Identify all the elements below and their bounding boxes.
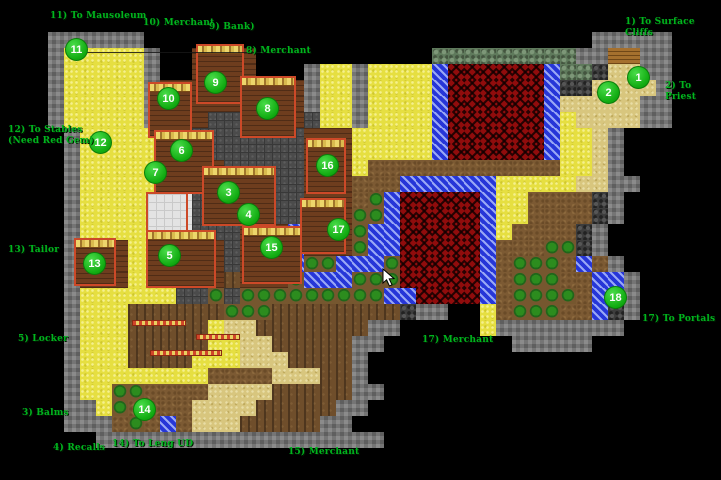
map-tile bbox=[480, 144, 496, 160]
map-tile bbox=[352, 176, 368, 192]
map-tile bbox=[576, 192, 592, 208]
map-tile bbox=[464, 176, 480, 192]
map-tile bbox=[304, 64, 320, 80]
building-roof-trim bbox=[244, 228, 300, 236]
map-tile bbox=[128, 128, 144, 144]
map-tile bbox=[528, 48, 544, 64]
map-tile bbox=[64, 304, 80, 320]
map-tile bbox=[384, 224, 400, 240]
map-tile bbox=[608, 176, 624, 192]
map-marker-15[interactable]: 15 bbox=[260, 236, 283, 259]
map-tile bbox=[64, 368, 80, 384]
map-tile bbox=[96, 400, 112, 416]
map-tile bbox=[416, 160, 432, 176]
map-tile bbox=[176, 304, 192, 320]
map-tile bbox=[496, 176, 512, 192]
map-tile bbox=[224, 432, 240, 448]
map-tile bbox=[352, 192, 368, 208]
map-tile bbox=[304, 384, 320, 400]
map-label-locker: 5) Locker bbox=[18, 334, 68, 345]
map-tile bbox=[112, 192, 128, 208]
map-tile bbox=[256, 352, 272, 368]
map-tile bbox=[80, 352, 96, 368]
map-tile bbox=[96, 416, 112, 432]
map-tile bbox=[304, 368, 320, 384]
map-tile bbox=[112, 288, 128, 304]
map-tile bbox=[288, 368, 304, 384]
map-tile bbox=[576, 208, 592, 224]
map-tile bbox=[128, 272, 144, 288]
map-tile bbox=[560, 192, 576, 208]
map-marker-8[interactable]: 8 bbox=[256, 97, 279, 120]
map-tile bbox=[480, 224, 496, 240]
map-marker-number: 11 bbox=[71, 44, 83, 56]
map-tile bbox=[160, 416, 176, 432]
map-tile bbox=[448, 64, 464, 80]
map-tile bbox=[224, 128, 240, 144]
map-tile bbox=[240, 352, 256, 368]
map-tile bbox=[320, 432, 336, 448]
map-tile bbox=[144, 288, 160, 304]
map-tile bbox=[496, 240, 512, 256]
map-tile bbox=[512, 320, 528, 336]
map-marker-number: 3 bbox=[225, 187, 231, 199]
map-tile bbox=[544, 80, 560, 96]
map-tile bbox=[608, 192, 624, 208]
map-tile bbox=[112, 176, 128, 192]
building-roof-trim bbox=[242, 78, 294, 86]
map-tile bbox=[448, 224, 464, 240]
map-tile bbox=[624, 176, 640, 192]
map-tile bbox=[464, 272, 480, 288]
map-tile bbox=[352, 224, 368, 240]
map-tile bbox=[464, 80, 480, 96]
map-tile bbox=[192, 400, 208, 416]
map-tile bbox=[512, 224, 528, 240]
map-tile bbox=[112, 64, 128, 80]
map-tile bbox=[320, 256, 336, 272]
map-tile bbox=[336, 80, 352, 96]
map-tile bbox=[256, 400, 272, 416]
map-tile bbox=[48, 32, 64, 48]
map-tile bbox=[288, 352, 304, 368]
map-marker-number: 2 bbox=[605, 87, 611, 99]
map-tile bbox=[176, 384, 192, 400]
map-tile bbox=[304, 288, 320, 304]
map-tile bbox=[432, 144, 448, 160]
map-tile bbox=[560, 112, 576, 128]
map-marker-16[interactable]: 16 bbox=[316, 154, 339, 177]
map-tile bbox=[528, 80, 544, 96]
map-tile bbox=[368, 336, 384, 352]
map-tile bbox=[320, 96, 336, 112]
map-tile bbox=[480, 48, 496, 64]
map-tile bbox=[112, 128, 128, 144]
map-tile bbox=[352, 240, 368, 256]
map-tile bbox=[592, 64, 608, 80]
map-tile bbox=[272, 432, 288, 448]
building-roof-trim bbox=[76, 240, 114, 248]
map-viewport[interactable]: 12345678910111213141516171811) To Mausol… bbox=[0, 0, 721, 480]
map-tile bbox=[144, 368, 160, 384]
map-label-to-surface-cliffs: 1) To Surface Cliffs bbox=[625, 17, 721, 39]
map-tile bbox=[128, 304, 144, 320]
map-tile bbox=[272, 320, 288, 336]
map-tile bbox=[96, 96, 112, 112]
map-tile bbox=[352, 304, 368, 320]
map-tile bbox=[592, 256, 608, 272]
map-tile bbox=[400, 272, 416, 288]
map-tile bbox=[400, 240, 416, 256]
map-tile bbox=[128, 256, 144, 272]
map-tile bbox=[304, 400, 320, 416]
map-marker-5[interactable]: 5 bbox=[158, 244, 181, 267]
map-tile bbox=[496, 144, 512, 160]
map-tile bbox=[432, 288, 448, 304]
map-tile bbox=[112, 48, 128, 64]
map-tile bbox=[416, 288, 432, 304]
map-tile bbox=[496, 224, 512, 240]
map-tile bbox=[496, 272, 512, 288]
map-tile bbox=[384, 176, 400, 192]
map-tile bbox=[576, 288, 592, 304]
building-roof-trim bbox=[204, 168, 274, 176]
map-marker-18[interactable]: 18 bbox=[604, 286, 627, 309]
map-tile bbox=[528, 96, 544, 112]
building-roof-trim bbox=[148, 232, 214, 240]
map-tile bbox=[576, 48, 592, 64]
map-tile bbox=[448, 208, 464, 224]
map-tile bbox=[384, 160, 400, 176]
map-tile bbox=[256, 432, 272, 448]
map-tile bbox=[176, 416, 192, 432]
map-tile bbox=[144, 48, 160, 64]
map-marker-number: 17 bbox=[332, 224, 344, 236]
map-tile bbox=[320, 336, 336, 352]
map-tile bbox=[480, 80, 496, 96]
map-tile bbox=[400, 176, 416, 192]
map-tile bbox=[528, 112, 544, 128]
map-marker-number: 18 bbox=[609, 292, 621, 304]
map-tile bbox=[560, 144, 576, 160]
map-tile bbox=[224, 112, 240, 128]
map-tile bbox=[432, 256, 448, 272]
map-tile bbox=[576, 64, 592, 80]
map-tile bbox=[432, 176, 448, 192]
map-tile bbox=[480, 272, 496, 288]
map-marker-number: 14 bbox=[138, 404, 150, 416]
map-tile bbox=[480, 320, 496, 336]
map-tile bbox=[336, 64, 352, 80]
map-label-merchant-10: 10) Merchant bbox=[143, 18, 214, 29]
map-tile bbox=[656, 48, 672, 64]
map-tile bbox=[352, 96, 368, 112]
map-tile bbox=[272, 352, 288, 368]
map-tile bbox=[608, 112, 624, 128]
map-tile bbox=[544, 144, 560, 160]
map-tile bbox=[400, 160, 416, 176]
map-tile bbox=[448, 240, 464, 256]
map-tile bbox=[384, 240, 400, 256]
map-marker-9[interactable]: 9 bbox=[204, 71, 227, 94]
map-tile bbox=[528, 144, 544, 160]
map-tile bbox=[528, 160, 544, 176]
map-tile bbox=[352, 400, 368, 416]
map-tile bbox=[592, 128, 608, 144]
map-tile bbox=[64, 384, 80, 400]
map-tile bbox=[224, 384, 240, 400]
map-tile bbox=[544, 256, 560, 272]
map-tile bbox=[464, 128, 480, 144]
map-tile bbox=[48, 64, 64, 80]
map-tile bbox=[128, 32, 144, 48]
map-tile bbox=[576, 272, 592, 288]
map-tile bbox=[176, 368, 192, 384]
map-tile bbox=[288, 288, 304, 304]
map-tile bbox=[64, 208, 80, 224]
map-tile bbox=[480, 288, 496, 304]
map-marker-7[interactable]: 7 bbox=[144, 161, 167, 184]
map-tile bbox=[560, 224, 576, 240]
map-tile bbox=[240, 368, 256, 384]
building-roof-trim bbox=[308, 140, 344, 148]
map-tile bbox=[64, 64, 80, 80]
map-tile bbox=[112, 160, 128, 176]
map-tile bbox=[544, 272, 560, 288]
map-tile bbox=[320, 272, 336, 288]
map-tile bbox=[288, 336, 304, 352]
map-tile bbox=[544, 96, 560, 112]
map-marker-11[interactable]: 11 bbox=[65, 38, 88, 61]
map-tile bbox=[368, 432, 384, 448]
map-tile bbox=[368, 240, 384, 256]
map-tile bbox=[400, 288, 416, 304]
map-tile bbox=[464, 64, 480, 80]
map-tile bbox=[352, 272, 368, 288]
map-tile bbox=[320, 320, 336, 336]
map-tile bbox=[352, 64, 368, 80]
map-tile bbox=[272, 304, 288, 320]
map-tile bbox=[368, 304, 384, 320]
map-tile bbox=[80, 80, 96, 96]
map-tile bbox=[512, 96, 528, 112]
map-tile bbox=[160, 400, 176, 416]
map-marker-2[interactable]: 2 bbox=[597, 81, 620, 104]
map-tile bbox=[496, 112, 512, 128]
map-tile bbox=[544, 160, 560, 176]
map-tile bbox=[112, 304, 128, 320]
map-tile bbox=[272, 400, 288, 416]
map-tile bbox=[320, 64, 336, 80]
map-tile bbox=[592, 192, 608, 208]
map-tile bbox=[400, 224, 416, 240]
map-tile bbox=[352, 112, 368, 128]
map-tile bbox=[464, 224, 480, 240]
map-tile bbox=[112, 208, 128, 224]
map-tile bbox=[480, 192, 496, 208]
map-tile bbox=[96, 48, 112, 64]
farm-fence bbox=[132, 320, 186, 326]
map-tile bbox=[160, 368, 176, 384]
map-tile bbox=[448, 112, 464, 128]
map-tile bbox=[320, 80, 336, 96]
map-tile bbox=[208, 112, 224, 128]
map-tile bbox=[240, 304, 256, 320]
map-marker-number: 8 bbox=[264, 103, 270, 115]
map-tile bbox=[368, 160, 384, 176]
map-tile bbox=[352, 336, 368, 352]
map-tile bbox=[528, 176, 544, 192]
map-tile bbox=[496, 320, 512, 336]
map-label-to-stables: 12) To Stables (Need Red Gem) bbox=[8, 125, 94, 147]
map-tile bbox=[528, 336, 544, 352]
map-marker-number: 5 bbox=[166, 250, 172, 262]
map-tile bbox=[416, 224, 432, 240]
map-tile bbox=[80, 160, 96, 176]
map-tile bbox=[272, 336, 288, 352]
map-tile bbox=[512, 288, 528, 304]
map-tile bbox=[208, 384, 224, 400]
map-tile bbox=[464, 160, 480, 176]
map-tile bbox=[96, 320, 112, 336]
map-tile bbox=[192, 416, 208, 432]
map-tile bbox=[368, 384, 384, 400]
map-tile bbox=[320, 288, 336, 304]
map-tile bbox=[608, 64, 624, 80]
map-tile bbox=[128, 112, 144, 128]
map-label-merchant-15: 15) Merchant bbox=[288, 447, 359, 458]
map-tile bbox=[448, 176, 464, 192]
map-tile bbox=[336, 416, 352, 432]
map-tile bbox=[112, 144, 128, 160]
map-tile bbox=[384, 304, 400, 320]
map-tile bbox=[544, 208, 560, 224]
map-tile bbox=[192, 432, 208, 448]
map-marker-number: 1 bbox=[635, 72, 641, 84]
map-tile bbox=[368, 64, 384, 80]
map-tile bbox=[528, 224, 544, 240]
map-tile bbox=[416, 96, 432, 112]
map-tile bbox=[448, 192, 464, 208]
map-tile bbox=[592, 32, 608, 48]
map-tile bbox=[384, 128, 400, 144]
map-tile bbox=[128, 176, 144, 192]
map-tile bbox=[96, 352, 112, 368]
map-marker-10[interactable]: 10 bbox=[157, 87, 180, 110]
map-tile bbox=[336, 432, 352, 448]
map-tile bbox=[608, 160, 624, 176]
map-tile bbox=[608, 48, 624, 64]
map-tile bbox=[48, 80, 64, 96]
map-tile bbox=[320, 112, 336, 128]
map-tile bbox=[448, 144, 464, 160]
map-tile bbox=[256, 288, 272, 304]
map-tile bbox=[384, 64, 400, 80]
map-tile bbox=[128, 96, 144, 112]
map-tile bbox=[384, 288, 400, 304]
map-tile bbox=[544, 240, 560, 256]
map-tile bbox=[288, 144, 304, 160]
map-tile bbox=[352, 80, 368, 96]
map-tile bbox=[128, 208, 144, 224]
map-marker-4[interactable]: 4 bbox=[237, 203, 260, 226]
map-tile bbox=[576, 176, 592, 192]
map-marker-6[interactable]: 6 bbox=[170, 139, 193, 162]
map-tile bbox=[384, 208, 400, 224]
map-marker-3[interactable]: 3 bbox=[217, 181, 240, 204]
map-marker-1[interactable]: 1 bbox=[627, 66, 650, 89]
map-tile bbox=[400, 304, 416, 320]
map-tile bbox=[576, 112, 592, 128]
map-tile bbox=[64, 160, 80, 176]
map-tile bbox=[496, 48, 512, 64]
map-label-balms: 3) Balms bbox=[22, 408, 69, 419]
map-tile bbox=[560, 160, 576, 176]
map-tile bbox=[624, 272, 640, 288]
map-marker-13[interactable]: 13 bbox=[83, 252, 106, 275]
map-marker-number: 12 bbox=[94, 137, 106, 149]
map-tile bbox=[544, 192, 560, 208]
map-tile bbox=[336, 384, 352, 400]
map-tile bbox=[224, 416, 240, 432]
map-tile bbox=[288, 160, 304, 176]
map-tile bbox=[608, 256, 624, 272]
map-tile bbox=[448, 272, 464, 288]
map-tile bbox=[384, 112, 400, 128]
map-tile bbox=[528, 256, 544, 272]
map-tile bbox=[96, 304, 112, 320]
map-tile bbox=[80, 336, 96, 352]
map-tile bbox=[448, 160, 464, 176]
map-tile bbox=[304, 352, 320, 368]
map-tile bbox=[592, 160, 608, 176]
map-marker-17[interactable]: 17 bbox=[327, 218, 350, 241]
map-tile bbox=[416, 144, 432, 160]
building-roof-trim bbox=[302, 200, 344, 208]
map-tile bbox=[608, 144, 624, 160]
map-tile bbox=[528, 240, 544, 256]
map-tile bbox=[416, 256, 432, 272]
map-tile bbox=[528, 288, 544, 304]
map-tile bbox=[416, 176, 432, 192]
map-marker-14[interactable]: 14 bbox=[133, 398, 156, 421]
map-tile bbox=[304, 96, 320, 112]
map-tile bbox=[224, 400, 240, 416]
map-tile bbox=[128, 288, 144, 304]
map-tile bbox=[272, 288, 288, 304]
map-tile bbox=[544, 320, 560, 336]
map-tile bbox=[112, 96, 128, 112]
map-tile bbox=[304, 304, 320, 320]
map-tile bbox=[400, 144, 416, 160]
map-tile bbox=[384, 192, 400, 208]
map-tile bbox=[400, 208, 416, 224]
map-tile bbox=[400, 112, 416, 128]
map-tile bbox=[480, 96, 496, 112]
map-tile bbox=[288, 304, 304, 320]
map-tile bbox=[416, 192, 432, 208]
map-marker-number: 10 bbox=[162, 93, 174, 105]
map-tile bbox=[336, 336, 352, 352]
map-tile bbox=[240, 144, 256, 160]
map-tile bbox=[256, 336, 272, 352]
map-tile bbox=[576, 128, 592, 144]
map-tile bbox=[96, 384, 112, 400]
map-tile bbox=[624, 112, 640, 128]
map-tile bbox=[224, 224, 240, 240]
map-tile bbox=[304, 272, 320, 288]
map-marker-number: 16 bbox=[321, 160, 333, 172]
